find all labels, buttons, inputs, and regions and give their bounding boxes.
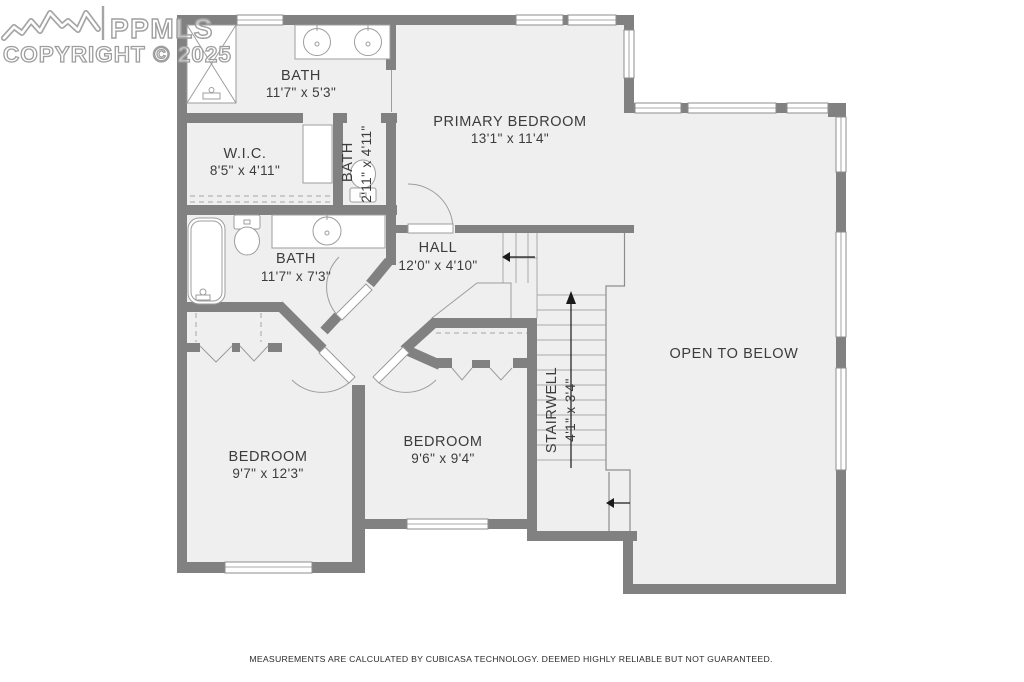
- window: [225, 562, 312, 573]
- wic-door-leaf: [303, 125, 332, 183]
- dims-primary-bedroom: 13'1" x 11'4": [471, 131, 549, 146]
- mountain-logo-icon: [4, 6, 103, 40]
- watermark: PPMLS COPYRIGHT © 2025: [3, 6, 232, 67]
- label-bath-main: BATH: [276, 251, 316, 267]
- label-bedroom-left: BEDROOM: [228, 449, 307, 465]
- window: [836, 232, 846, 337]
- label-wic: W.I.C.: [223, 146, 266, 162]
- floor-plan-page: BATH 11'7" x 5'3" W.I.C. 8'5" x 4'11" BA…: [0, 0, 1024, 682]
- toilet-fixture: [234, 215, 260, 255]
- dims-bedroom-left: 9'7" x 12'3": [232, 466, 303, 481]
- dims-bath-small: 2'11" x 4'11": [359, 125, 374, 202]
- label-bath-top: BATH: [281, 68, 321, 84]
- label-bedroom-right: BEDROOM: [403, 434, 482, 450]
- floor-plan-svg: BATH 11'7" x 5'3" W.I.C. 8'5" x 4'11" BA…: [0, 0, 1024, 682]
- dims-hall: 12'0" x 4'10": [398, 258, 477, 273]
- window: [787, 103, 828, 113]
- window: [624, 30, 634, 78]
- bathtub-fixture: [188, 218, 225, 304]
- label-open-to-below: OPEN TO BELOW: [670, 346, 799, 362]
- label-stairwell: STAIRWELL: [544, 367, 560, 453]
- watermark-brand: PPMLS: [110, 13, 214, 44]
- dims-wic: 8'5" x 4'11": [210, 163, 280, 178]
- window: [568, 15, 616, 25]
- label-bath-small: BATH: [340, 142, 356, 182]
- window: [237, 15, 283, 25]
- window: [407, 519, 488, 529]
- window: [836, 117, 846, 172]
- double-sink-vanity-fixture: [295, 25, 390, 59]
- window: [635, 103, 681, 113]
- dims-bedroom-right: 9'6" x 9'4": [411, 451, 474, 466]
- footer-disclaimer: MEASUREMENTS ARE CALCULATED BY CUBICASA …: [249, 654, 772, 664]
- window: [688, 103, 776, 113]
- watermark-copyright: COPYRIGHT © 2025: [3, 42, 232, 67]
- sink-vanity-fixture: [272, 215, 385, 248]
- dims-stairwell: 4'1" x 3'4": [563, 378, 578, 441]
- dims-bath-top: 11'7" x 5'3": [266, 85, 336, 100]
- window: [516, 15, 563, 25]
- dims-bath-main: 11'7" x 7'3": [261, 269, 331, 284]
- label-hall: HALL: [419, 240, 458, 256]
- label-primary-bedroom: PRIMARY BEDROOM: [433, 114, 587, 130]
- window: [836, 368, 846, 470]
